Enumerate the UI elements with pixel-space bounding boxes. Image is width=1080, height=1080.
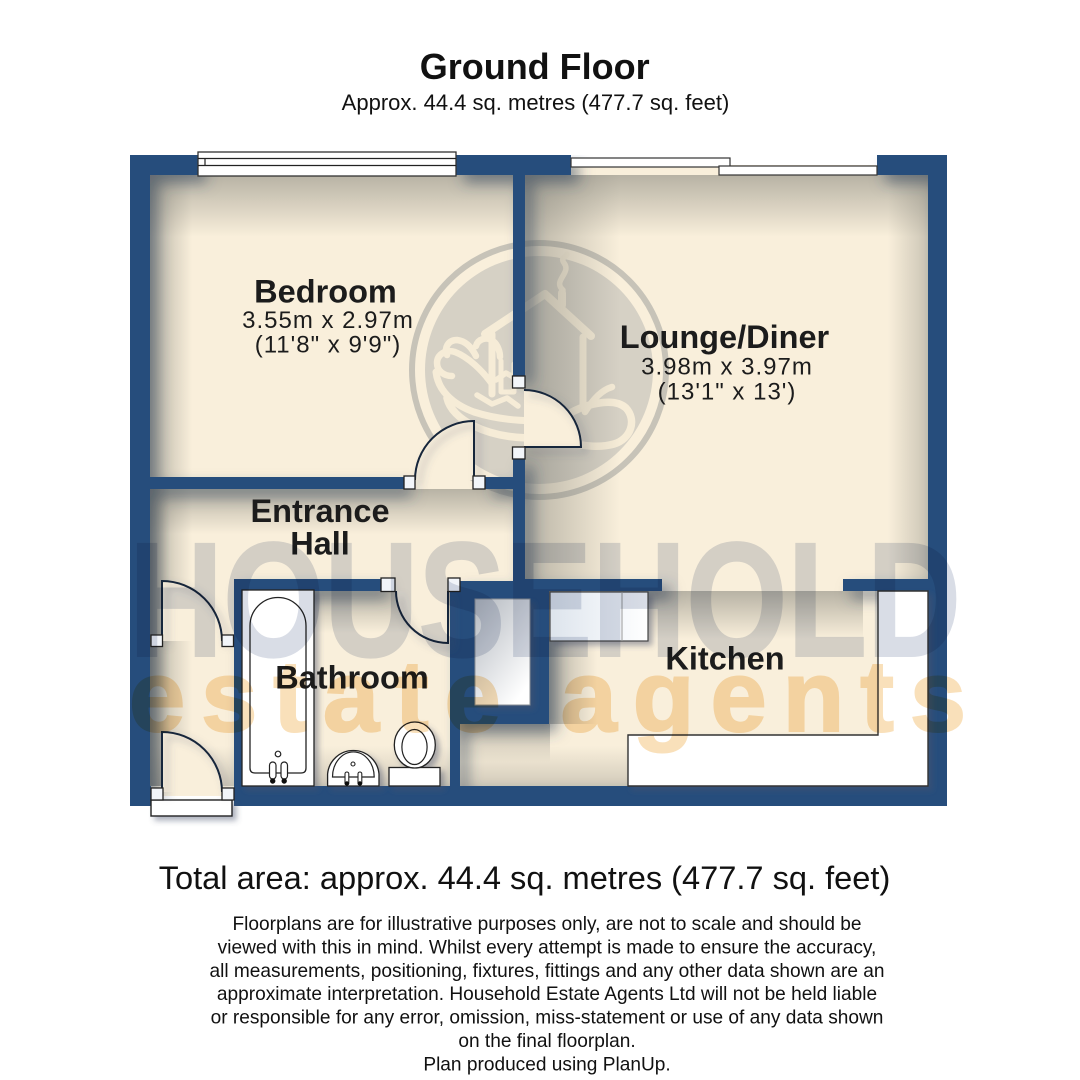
- svg-text:Lounge/Diner: Lounge/Diner: [620, 319, 830, 355]
- svg-text:on the final floorplan.: on the final floorplan.: [458, 1031, 635, 1052]
- svg-text:Floorplans are for illustrativ: Floorplans are for illustrative purposes…: [232, 914, 861, 935]
- svg-text:Approx. 44.4 sq. metres (477.7: Approx. 44.4 sq. metres (477.7 sq. feet): [342, 90, 730, 115]
- svg-text:(13'1" x 13'): (13'1" x 13'): [658, 379, 797, 406]
- svg-text:Plan produced using PlanUp.: Plan produced using PlanUp.: [423, 1054, 670, 1075]
- svg-text:Bedroom: Bedroom: [254, 274, 397, 310]
- svg-text:Ground Floor: Ground Floor: [420, 46, 650, 87]
- svg-text:approximate interpretation. Ho: approximate interpretation. Household Es…: [217, 984, 877, 1005]
- svg-text:3.55m x 2.97m: 3.55m x 2.97m: [242, 307, 414, 334]
- svg-text:or responsible for any error,: or responsible for any error, omission, …: [211, 1008, 884, 1029]
- svg-text:viewed with this in mind. Whil: viewed with this in mind. Whilst every a…: [218, 937, 877, 958]
- svg-text:(11'8" x 9'9"): (11'8" x 9'9"): [255, 332, 401, 359]
- svg-text:all measurements, positioning,: all measurements, positioning, fixtures,…: [209, 961, 884, 982]
- svg-text:Total area: approx. 44.4 sq. m: Total area: approx. 44.4 sq. metres (477…: [159, 859, 891, 896]
- svg-text:3.98m x 3.97m: 3.98m x 3.97m: [641, 354, 813, 381]
